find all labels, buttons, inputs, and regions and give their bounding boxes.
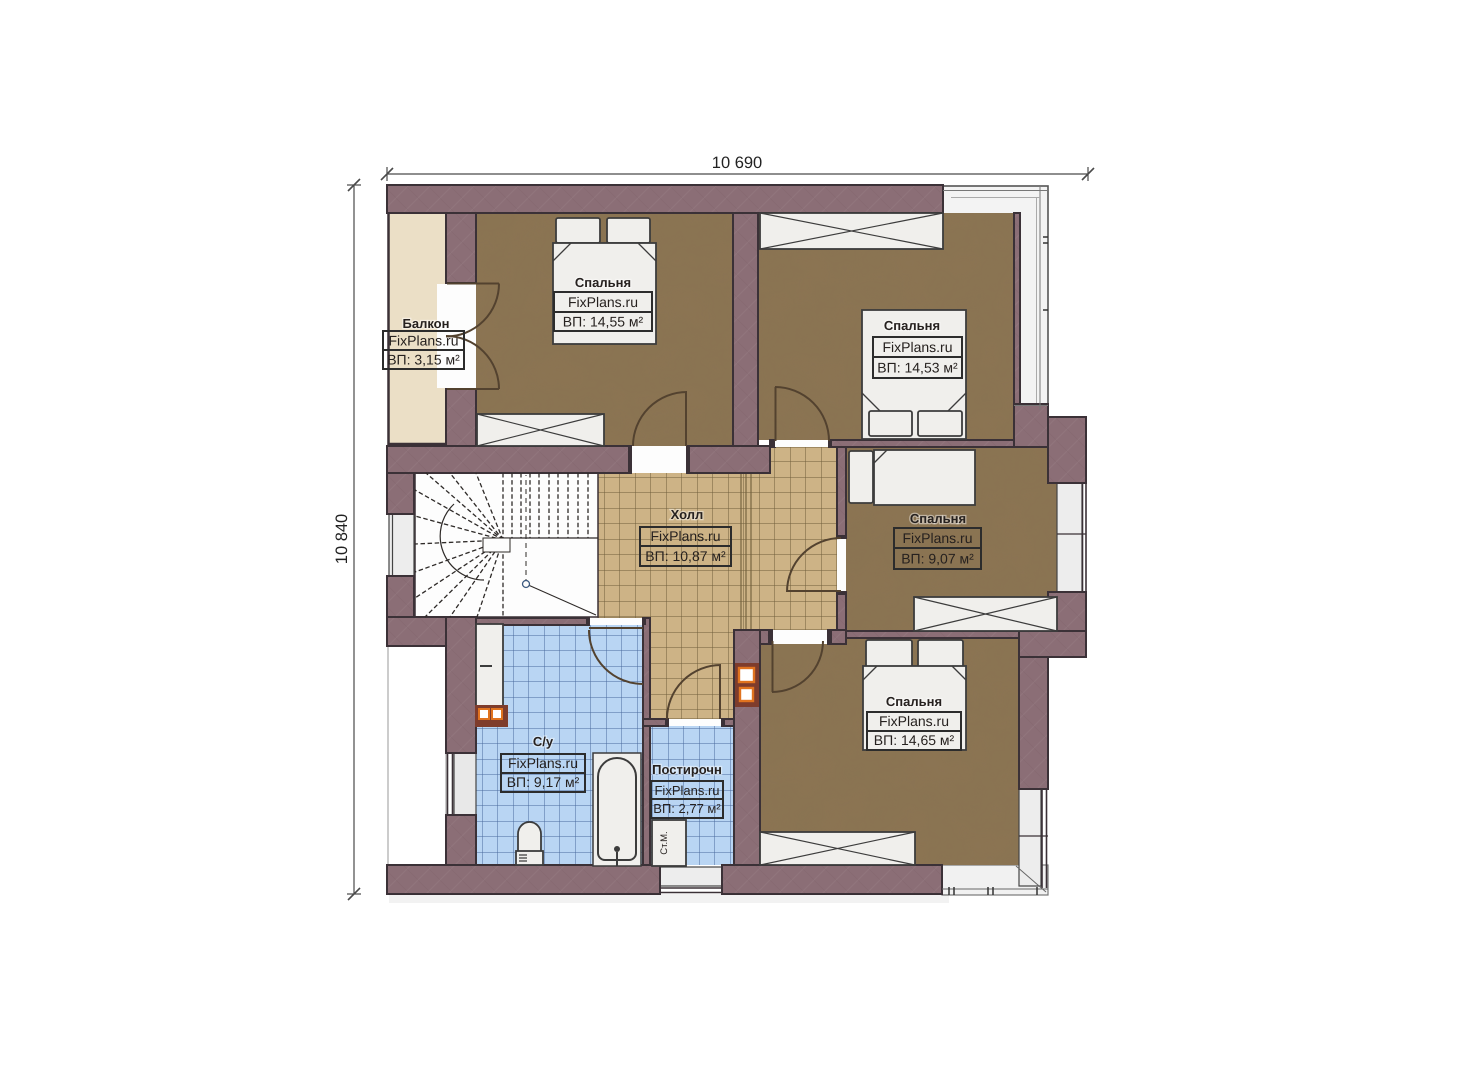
svg-text:ВП: 14,65 м²: ВП: 14,65 м² — [874, 732, 955, 748]
svg-text:FixPlans.ru: FixPlans.ru — [568, 294, 638, 310]
svg-text:FixPlans.ru: FixPlans.ru — [650, 528, 720, 544]
svg-text:FixPlans.ru: FixPlans.ru — [654, 783, 719, 798]
svg-text:Спальня: Спальня — [884, 318, 940, 333]
svg-text:ВП: 3,15 м²: ВП: 3,15 м² — [387, 352, 460, 368]
svg-text:ВП: 14,55 м²: ВП: 14,55 м² — [563, 314, 644, 330]
svg-text:ВП: 14,53 м²: ВП: 14,53 м² — [877, 360, 958, 376]
svg-text:Спальня: Спальня — [910, 511, 966, 526]
svg-text:С/у: С/у — [533, 734, 554, 749]
svg-text:FixPlans.ru: FixPlans.ru — [882, 339, 952, 355]
svg-text:Спальня: Спальня — [575, 275, 631, 290]
svg-text:Постирочн: Постирочн — [652, 762, 722, 777]
svg-text:Спальня: Спальня — [886, 694, 942, 709]
svg-text:Холл: Холл — [671, 507, 704, 522]
svg-text:10 690: 10 690 — [712, 154, 762, 172]
svg-text:Балкон: Балкон — [403, 316, 450, 331]
svg-text:FixPlans.ru: FixPlans.ru — [388, 333, 458, 349]
svg-text:ВП: 9,17 м²: ВП: 9,17 м² — [507, 774, 580, 790]
svg-text:FixPlans.ru: FixPlans.ru — [508, 755, 578, 771]
svg-text:ВП: 9,07 м²: ВП: 9,07 м² — [901, 551, 974, 567]
svg-text:FixPlans.ru: FixPlans.ru — [902, 530, 972, 546]
svg-text:ВП: 10,87 м²: ВП: 10,87 м² — [645, 548, 726, 564]
svg-text:10 840: 10 840 — [333, 514, 351, 564]
svg-text:Ст.М.: Ст.М. — [659, 831, 670, 854]
svg-text:ВП: 2,77 м²: ВП: 2,77 м² — [653, 801, 721, 816]
svg-text:FixPlans.ru: FixPlans.ru — [879, 713, 949, 729]
